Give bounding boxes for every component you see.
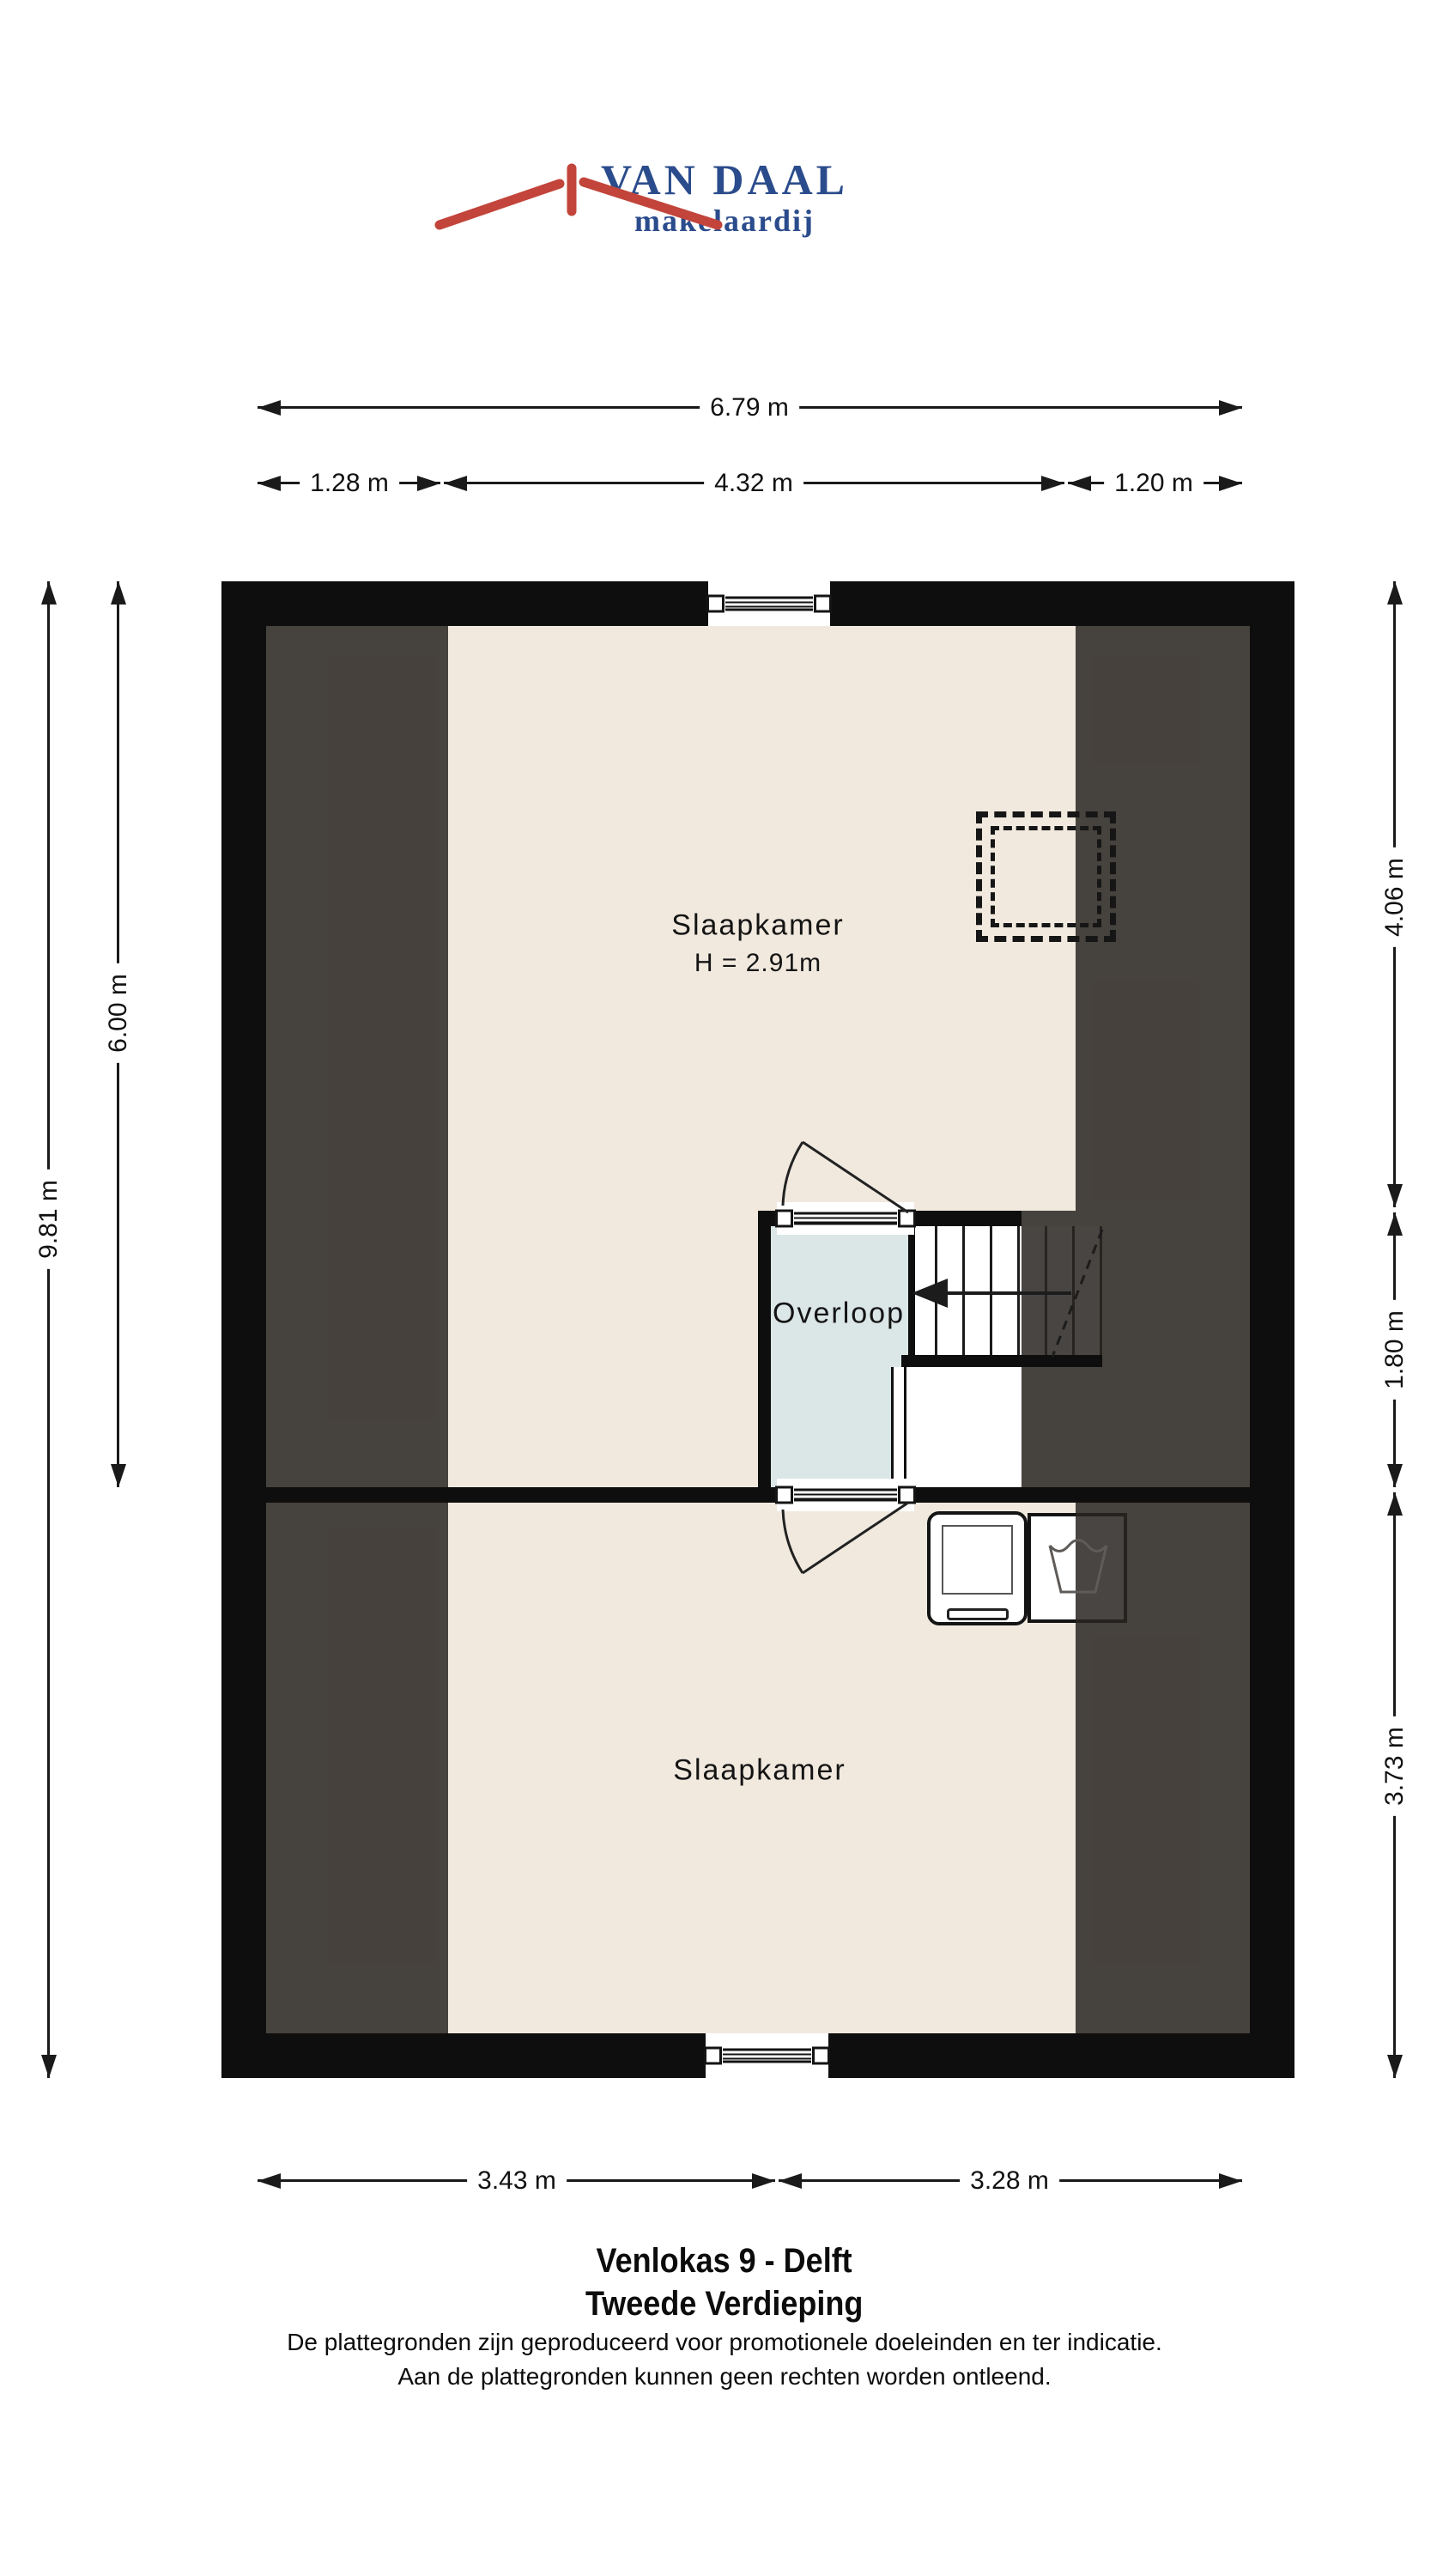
floor-plan-page: VAN DAAL makelaardij 6.79 m 1.28 m 4.32 … bbox=[0, 0, 1449, 2576]
room-label-bedroom-bottom: Slaapkamer bbox=[673, 1754, 846, 1788]
door-swing-arc-top bbox=[783, 1142, 803, 1206]
door-swing-arc-bottom bbox=[783, 1510, 803, 1573]
plan-floor-name: Tweede Verdieping bbox=[81, 2282, 1368, 2325]
footer: Venlokas 9 - Delft Tweede Verdieping De … bbox=[81, 2239, 1368, 2394]
room-ceiling-height: H = 2.91m bbox=[694, 949, 822, 978]
plan-lineart-overlay bbox=[0, 0, 1449, 2576]
room-label-bedroom-top: Slaapkamer bbox=[671, 909, 844, 943]
plan-address: Venlokas 9 - Delft bbox=[81, 2239, 1368, 2282]
stair-direction-arrow-icon bbox=[912, 1279, 948, 1308]
disclaimer-line-1: De plattegronden zijn geproduceerd voor … bbox=[81, 2325, 1368, 2360]
disclaimer-line-2: Aan de plattegronden kunnen geen rechten… bbox=[81, 2360, 1368, 2394]
door-leaf-top bbox=[803, 1142, 908, 1212]
door-leaf-bottom bbox=[803, 1503, 908, 1573]
wash-tub-icon bbox=[1050, 1540, 1106, 1593]
room-label-landing: Overloop bbox=[773, 1297, 905, 1331]
